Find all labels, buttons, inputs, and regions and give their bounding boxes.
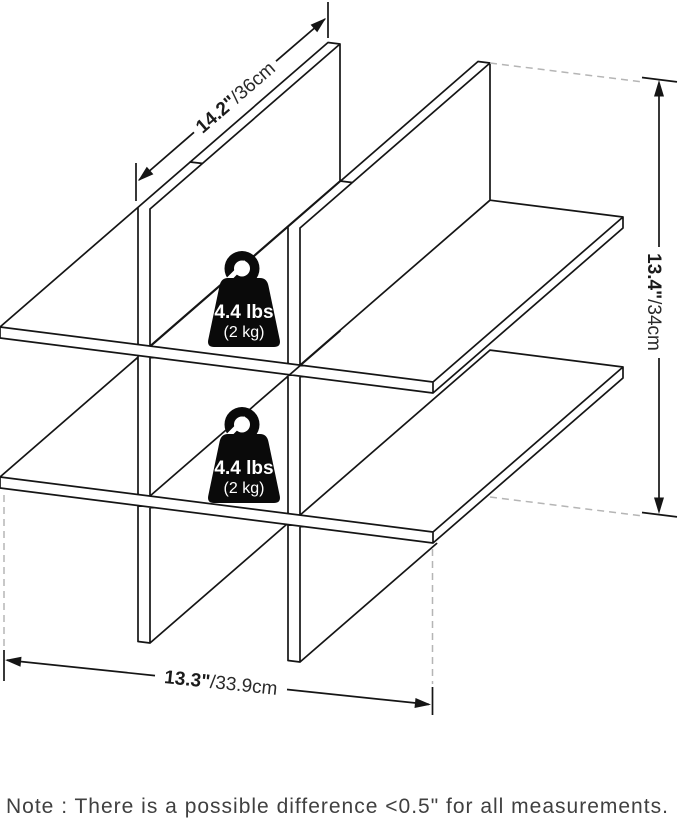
depth-dimension: 14.2"/36cm <box>136 2 328 201</box>
product-dimension-diagram: 14.2"/36cm 13.4"/34cm 13.3"/33.9cm 4.4 l… <box>0 0 679 822</box>
weight-badge-2: 4.4 lbs (2 kg) <box>208 407 280 503</box>
note-text: Note : There is a possible difference <0… <box>6 795 669 818</box>
depth-dimension-label: 14.2"/36cm <box>192 58 280 138</box>
width-dimension: 13.3"/33.9cm <box>4 650 433 715</box>
weight-value-label: 4.4 lbs <box>214 458 273 479</box>
extension-line-paths <box>4 63 643 684</box>
shelf-unit-outline <box>0 43 623 663</box>
weight-badge-1: 4.4 lbs (2 kg) <box>208 251 280 347</box>
extension-lines <box>4 63 643 684</box>
weight-metric-label: (2 kg) <box>224 324 265 341</box>
weight-value-label: 4.4 lbs <box>214 302 273 323</box>
width-dimension-label: 13.3"/33.9cm <box>163 667 278 700</box>
dimension-diagram-page: 14.2"/36cm 13.4"/34cm 13.3"/33.9cm 4.4 l… <box>0 0 679 822</box>
height-dimension: 13.4"/34cm <box>642 78 677 517</box>
height-dimension-label: 13.4"/34cm <box>643 253 664 351</box>
shelf-unit-line-art <box>0 43 623 663</box>
weight-metric-label: (2 kg) <box>224 480 265 497</box>
